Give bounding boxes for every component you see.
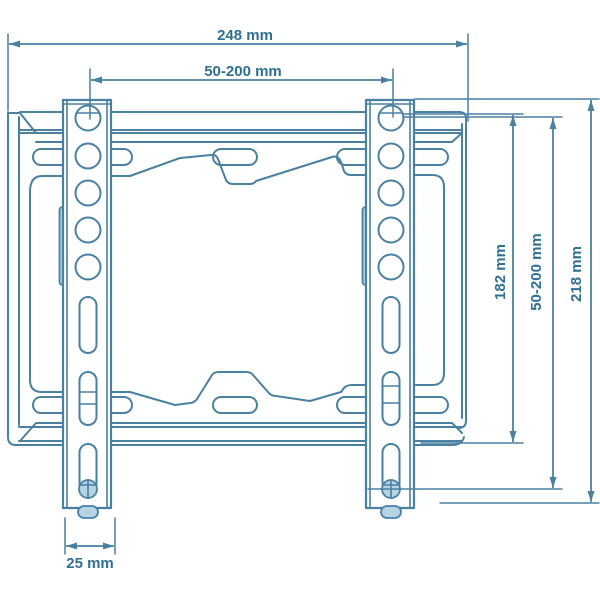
vesa-hole bbox=[76, 181, 101, 206]
vesa-hole bbox=[379, 218, 404, 243]
dim-label-total-height: 218 mm bbox=[568, 246, 585, 302]
vesa-hole bbox=[379, 144, 404, 169]
dim-label-total-width: 248 mm bbox=[217, 27, 273, 44]
dim-label-hole-spacing-vertical: 50-200 mm bbox=[528, 233, 545, 311]
vesa-hole bbox=[76, 106, 101, 131]
technical-drawing: 248 mm 50-200 mm 182 mm 50-200 mm 218 mm… bbox=[0, 0, 600, 600]
left-tv-rail bbox=[60, 100, 112, 518]
dim-label-hole-spacing-horizontal: 50-200 mm bbox=[204, 63, 282, 80]
vesa-hole bbox=[379, 106, 404, 131]
vesa-hole bbox=[379, 255, 404, 280]
vesa-hole bbox=[379, 181, 404, 206]
wall-slot bbox=[213, 397, 257, 413]
plate-right-edge bbox=[460, 118, 466, 428]
mount-dimension-diagram: 248 mm 50-200 mm 182 mm 50-200 mm 218 mm… bbox=[0, 0, 600, 600]
bottom-screw-head bbox=[381, 506, 401, 518]
dim-label-rail-width: 25 mm bbox=[66, 555, 114, 572]
vesa-hole bbox=[76, 218, 101, 243]
right-tv-rail bbox=[363, 100, 415, 518]
vesa-hole bbox=[76, 144, 101, 169]
dim-label-bracket-height: 182 mm bbox=[492, 244, 509, 300]
bottom-screw-head bbox=[78, 506, 98, 518]
vesa-hole bbox=[76, 255, 101, 280]
